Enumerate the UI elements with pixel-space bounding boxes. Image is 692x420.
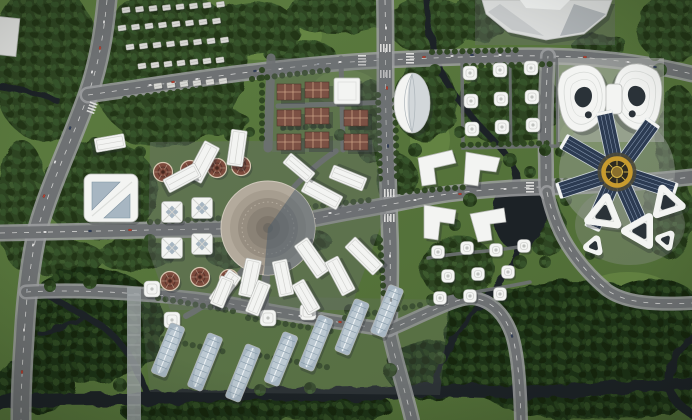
atmosphere-layer	[0, 0, 692, 420]
vignette	[0, 0, 692, 420]
aerial-city-render	[0, 0, 692, 420]
